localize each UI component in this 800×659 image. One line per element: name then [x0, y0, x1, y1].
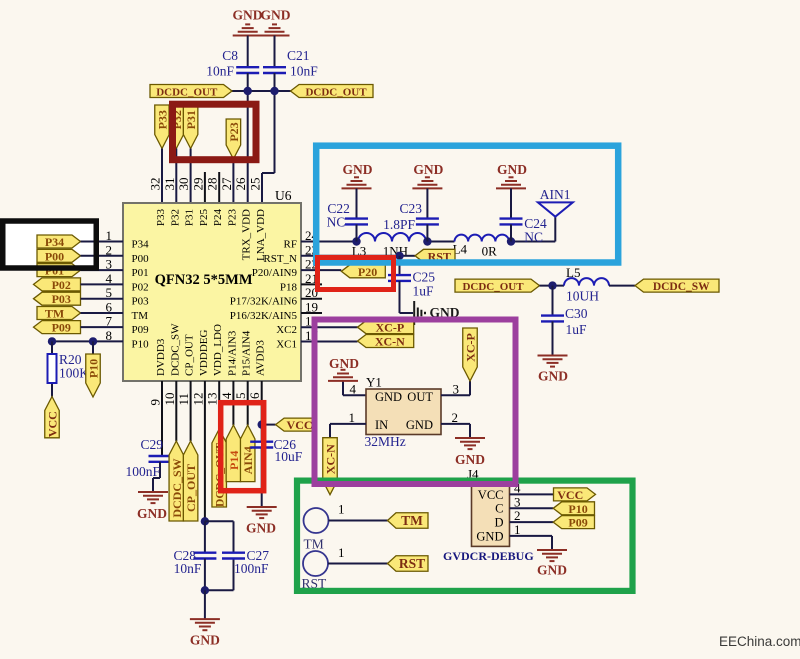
svg-text:DVDD3: DVDD3: [155, 338, 167, 376]
svg-text:1: 1: [349, 410, 356, 425]
svg-text:P01: P01: [132, 267, 149, 279]
svg-text:GND: GND: [137, 506, 167, 521]
svg-text:P03: P03: [52, 292, 71, 306]
svg-text:XC-N: XC-N: [324, 444, 338, 474]
svg-text:VCC: VCC: [557, 488, 583, 502]
svg-text:AIN4: AIN4: [241, 446, 255, 474]
svg-text:EEChina.com: EEChina.com: [719, 634, 800, 649]
svg-text:GND: GND: [233, 8, 263, 23]
svg-text:Y1: Y1: [366, 375, 382, 390]
svg-text:P20: P20: [358, 265, 377, 279]
svg-text:VCC: VCC: [46, 411, 60, 437]
svg-text:P00: P00: [45, 249, 64, 263]
svg-text:C: C: [495, 502, 503, 516]
svg-text:1: 1: [338, 502, 345, 517]
svg-text:10: 10: [162, 393, 177, 406]
svg-text:10nF: 10nF: [290, 64, 318, 79]
svg-text:P02: P02: [132, 281, 149, 293]
svg-text:P14/AIN3: P14/AIN3: [226, 330, 238, 376]
svg-text:32MHz: 32MHz: [365, 434, 406, 449]
svg-text:28: 28: [205, 178, 220, 191]
svg-text:GND: GND: [375, 390, 402, 404]
svg-text:RF: RF: [284, 239, 297, 251]
svg-text:C23: C23: [400, 201, 423, 216]
svg-text:31: 31: [162, 178, 177, 191]
svg-text:1: 1: [514, 522, 521, 537]
svg-text:P33: P33: [155, 209, 167, 227]
svg-text:D: D: [494, 516, 503, 530]
svg-text:NC: NC: [327, 215, 346, 230]
svg-text:P10: P10: [568, 502, 587, 516]
svg-text:GND: GND: [455, 452, 485, 467]
svg-text:11: 11: [176, 393, 191, 406]
svg-text:P24: P24: [212, 209, 224, 227]
svg-text:25: 25: [248, 178, 263, 191]
svg-text:TM: TM: [45, 307, 64, 321]
svg-text:P31: P31: [184, 209, 196, 226]
svg-text:10uF: 10uF: [275, 449, 303, 464]
svg-text:CP_OUT: CP_OUT: [184, 334, 196, 376]
svg-text:NC: NC: [524, 229, 543, 244]
svg-text:DCDC_OUT: DCDC_OUT: [156, 87, 218, 99]
svg-text:P10: P10: [87, 359, 101, 378]
svg-text:RST: RST: [399, 556, 425, 571]
svg-text:P17/32K/AIN6: P17/32K/AIN6: [230, 296, 298, 308]
svg-text:1.8PF: 1.8PF: [383, 217, 415, 232]
svg-text:GND: GND: [413, 162, 443, 177]
svg-text:2: 2: [452, 410, 459, 425]
svg-text:4: 4: [350, 382, 357, 397]
svg-text:P18: P18: [280, 281, 298, 293]
svg-text:GVDCR-DEBUG: GVDCR-DEBUG: [443, 549, 534, 563]
svg-text:OUT: OUT: [407, 390, 433, 404]
svg-text:XC-P: XC-P: [376, 321, 405, 335]
svg-text:DCDC_SW: DCDC_SW: [169, 323, 181, 376]
svg-text:27: 27: [219, 177, 234, 191]
svg-text:P32: P32: [169, 209, 181, 226]
svg-text:13: 13: [205, 393, 220, 406]
svg-text:1uF: 1uF: [566, 322, 588, 337]
svg-text:GND: GND: [246, 521, 276, 536]
svg-text:GND: GND: [538, 369, 568, 384]
svg-text:P23: P23: [227, 122, 241, 141]
svg-text:DCDC_OUT: DCDC_OUT: [305, 87, 367, 99]
svg-text:P10: P10: [132, 338, 150, 350]
svg-text:12: 12: [190, 393, 205, 406]
svg-text:3: 3: [453, 382, 460, 397]
svg-text:P23: P23: [226, 209, 238, 227]
svg-text:GND: GND: [537, 563, 567, 578]
svg-text:P03: P03: [132, 296, 150, 308]
svg-text:P00: P00: [132, 253, 150, 265]
svg-text:TM: TM: [401, 513, 423, 528]
svg-text:P09: P09: [568, 516, 587, 530]
svg-text:C21: C21: [287, 48, 310, 63]
svg-text:100nF: 100nF: [125, 464, 160, 479]
svg-text:GND: GND: [406, 418, 433, 432]
svg-text:VCC: VCC: [478, 488, 504, 502]
svg-text:LNA_VDD: LNA_VDD: [255, 209, 267, 261]
svg-text:P02: P02: [52, 278, 71, 292]
svg-text:CP_OUT: CP_OUT: [184, 464, 198, 512]
svg-text:0R: 0R: [482, 244, 498, 259]
svg-text:C29: C29: [140, 437, 163, 452]
svg-text:P34: P34: [132, 239, 150, 251]
svg-text:10UH: 10UH: [566, 289, 599, 304]
svg-text:2: 2: [514, 508, 521, 523]
svg-text:DCDC_SW: DCDC_SW: [170, 458, 184, 517]
svg-text:XC-P: XC-P: [464, 333, 478, 362]
svg-text:100K: 100K: [59, 366, 89, 381]
svg-text:9: 9: [148, 399, 163, 406]
svg-text:P14: P14: [227, 451, 241, 470]
svg-text:XC-N: XC-N: [375, 335, 405, 349]
svg-text:1uF: 1uF: [413, 284, 435, 299]
svg-text:AVDD3: AVDD3: [255, 340, 267, 376]
svg-text:26: 26: [233, 177, 248, 191]
svg-text:GND: GND: [261, 8, 291, 23]
svg-text:P33: P33: [156, 110, 170, 129]
svg-text:TM: TM: [304, 537, 324, 552]
svg-text:29: 29: [190, 178, 205, 191]
svg-text:P15/AIN4: P15/AIN4: [241, 330, 253, 376]
svg-text:GND: GND: [329, 356, 359, 371]
svg-text:QFN32 5*5MM: QFN32 5*5MM: [155, 272, 253, 288]
svg-text:32: 32: [148, 178, 163, 191]
svg-text:1: 1: [338, 545, 345, 560]
svg-text:10nF: 10nF: [174, 561, 202, 576]
svg-text:XC2: XC2: [276, 324, 297, 336]
svg-text:VDDDEG: VDDDEG: [198, 330, 210, 376]
svg-text:VCC: VCC: [287, 418, 313, 432]
svg-text:DCDC_OUT: DCDC_OUT: [462, 281, 524, 293]
svg-text:U6: U6: [275, 188, 292, 203]
svg-text:P09: P09: [132, 324, 150, 336]
svg-text:30: 30: [176, 178, 191, 191]
svg-text:10nF: 10nF: [206, 64, 234, 79]
svg-text:P09: P09: [52, 321, 71, 335]
svg-text:L5: L5: [566, 265, 580, 280]
svg-text:GND: GND: [343, 162, 373, 177]
svg-text:IN: IN: [375, 418, 388, 432]
svg-text:DCDC_SW: DCDC_SW: [653, 281, 710, 293]
svg-text:VDD_LDO: VDD_LDO: [212, 324, 224, 376]
svg-text:GND: GND: [497, 162, 527, 177]
svg-text:GND: GND: [476, 529, 503, 543]
svg-text:P16/32K/AIN5: P16/32K/AIN5: [230, 310, 298, 322]
svg-text:TM: TM: [132, 310, 149, 322]
svg-text:XC1: XC1: [276, 338, 297, 350]
svg-text:3: 3: [514, 494, 521, 509]
svg-text:P34: P34: [45, 235, 64, 249]
svg-text:C8: C8: [222, 48, 238, 63]
svg-text:C30: C30: [565, 306, 588, 321]
svg-text:TRX_VDD: TRX_VDD: [241, 209, 253, 260]
svg-text:AIN1: AIN1: [540, 187, 571, 202]
svg-text:P25: P25: [198, 209, 210, 227]
svg-text:C25: C25: [413, 270, 436, 285]
svg-text:P20/AIN9: P20/AIN9: [252, 267, 298, 279]
svg-text:GND: GND: [190, 633, 220, 648]
svg-text:RST_N: RST_N: [263, 253, 297, 265]
svg-text:P31: P31: [184, 110, 198, 129]
svg-text:100nF: 100nF: [234, 561, 269, 576]
